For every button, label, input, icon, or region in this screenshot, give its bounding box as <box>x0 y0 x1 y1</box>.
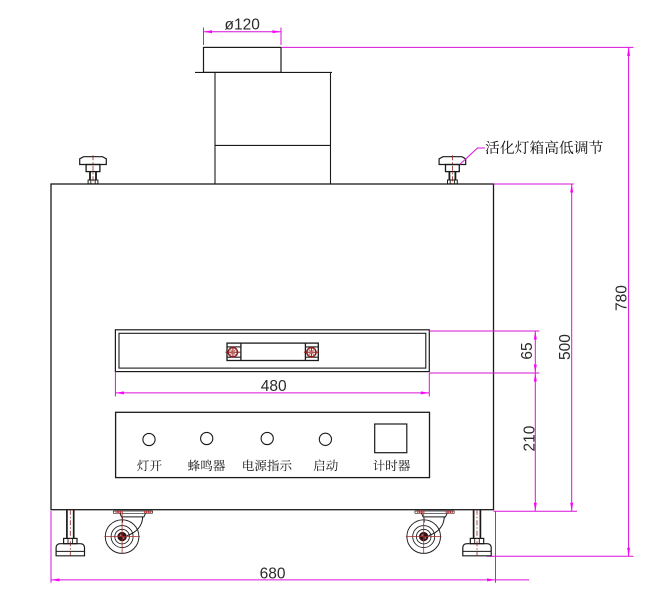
svg-text:780: 780 <box>614 285 631 311</box>
svg-text:65: 65 <box>519 342 536 359</box>
svg-text:ø120: ø120 <box>225 16 261 33</box>
svg-text:210: 210 <box>521 425 538 451</box>
svg-text:500: 500 <box>557 334 574 360</box>
svg-text:680: 680 <box>260 565 286 582</box>
svg-text:480: 480 <box>261 378 287 395</box>
